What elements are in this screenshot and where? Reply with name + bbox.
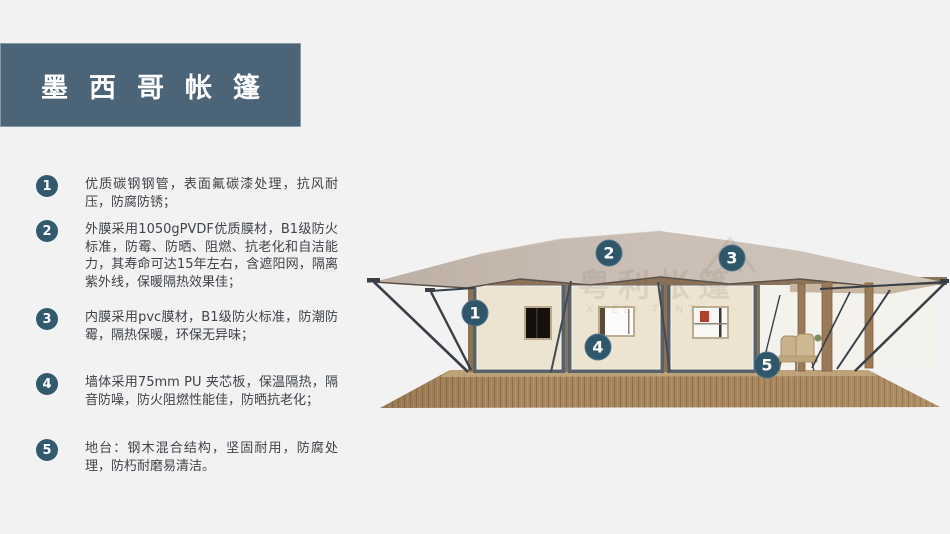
feature-text: 外膜采用1050gPVDF优质膜材，B1级防火标准，防霉、防晒、阻燃、抗老化和自… <box>85 221 338 291</box>
feature-text: 内膜采用pvc膜材，B1级防火标准，防潮防霉，隔热保暖，环保无异味； <box>85 309 338 344</box>
feature-item: 1 优质碳钢钢管，表面氟碳漆处理，抗风耐压，防腐防锈； <box>36 176 342 211</box>
watermark-en: XUELI TENT <box>586 303 700 316</box>
callout-number: 4 <box>592 338 603 357</box>
feature-item: 5 地台：钢木混合结构，坚固耐用，防腐处理，防朽耐磨易清洁。 <box>36 440 342 475</box>
tent-illustration: 粤利帐篷 XUELI TENT <box>350 220 950 425</box>
window-red-sign <box>700 311 709 322</box>
callout-marker: 1 <box>462 300 488 326</box>
callout-marker: 3 <box>719 245 745 271</box>
callout-number: 1 <box>469 304 480 323</box>
plant <box>815 335 822 342</box>
deck-platform <box>380 370 940 408</box>
callout-number: 2 <box>603 244 614 263</box>
cabin-module-left <box>473 282 565 373</box>
feature-item: 2 外膜采用1050gPVDF优质膜材，B1级防火标准，防霉、防晒、阻燃、抗老化… <box>36 221 342 291</box>
feature-list: 1 优质碳钢钢管，表面氟碳漆处理，抗风耐压，防腐防锈； 2 外膜采用1050gP… <box>36 0 342 534</box>
callout-marker: 5 <box>754 352 780 378</box>
feature-number-badge: 4 <box>36 373 58 395</box>
feature-number-badge: 3 <box>36 308 58 330</box>
callout-number: 3 <box>726 249 737 268</box>
tent-diagram: 粤利帐篷 XUELI TENT <box>350 220 950 425</box>
feature-number-badge: 5 <box>36 439 58 461</box>
feature-number-badge: 1 <box>36 175 58 197</box>
feature-text: 墙体采用75mm PU 夹芯板，保温隔热，隔音防噪，防火阻燃性能佳，防晒抗老化； <box>85 374 338 409</box>
callout-number: 5 <box>761 356 772 375</box>
feature-item: 3 内膜采用pvc膜材，B1级防火标准，防潮防霉，隔热保暖，环保无异味； <box>36 309 342 344</box>
feature-item: 4 墙体采用75mm PU 夹芯板，保温隔热，隔音防噪，防火阻燃性能佳，防晒抗老… <box>36 374 342 409</box>
callout-marker: 2 <box>596 240 622 266</box>
feature-text: 地台：钢木混合结构，坚固耐用，防腐处理，防朽耐磨易清洁。 <box>85 440 338 475</box>
left-guy-rods <box>367 278 474 372</box>
feature-number-badge: 2 <box>36 220 58 242</box>
feature-text: 优质碳钢钢管，表面氟碳漆处理，抗风耐压，防腐防锈； <box>85 176 338 211</box>
slide: 墨西哥帐篷 1 优质碳钢钢管，表面氟碳漆处理，抗风耐压，防腐防锈； 2 外膜采用… <box>0 0 950 534</box>
window-dark <box>526 308 550 338</box>
callout-marker: 4 <box>585 334 611 360</box>
